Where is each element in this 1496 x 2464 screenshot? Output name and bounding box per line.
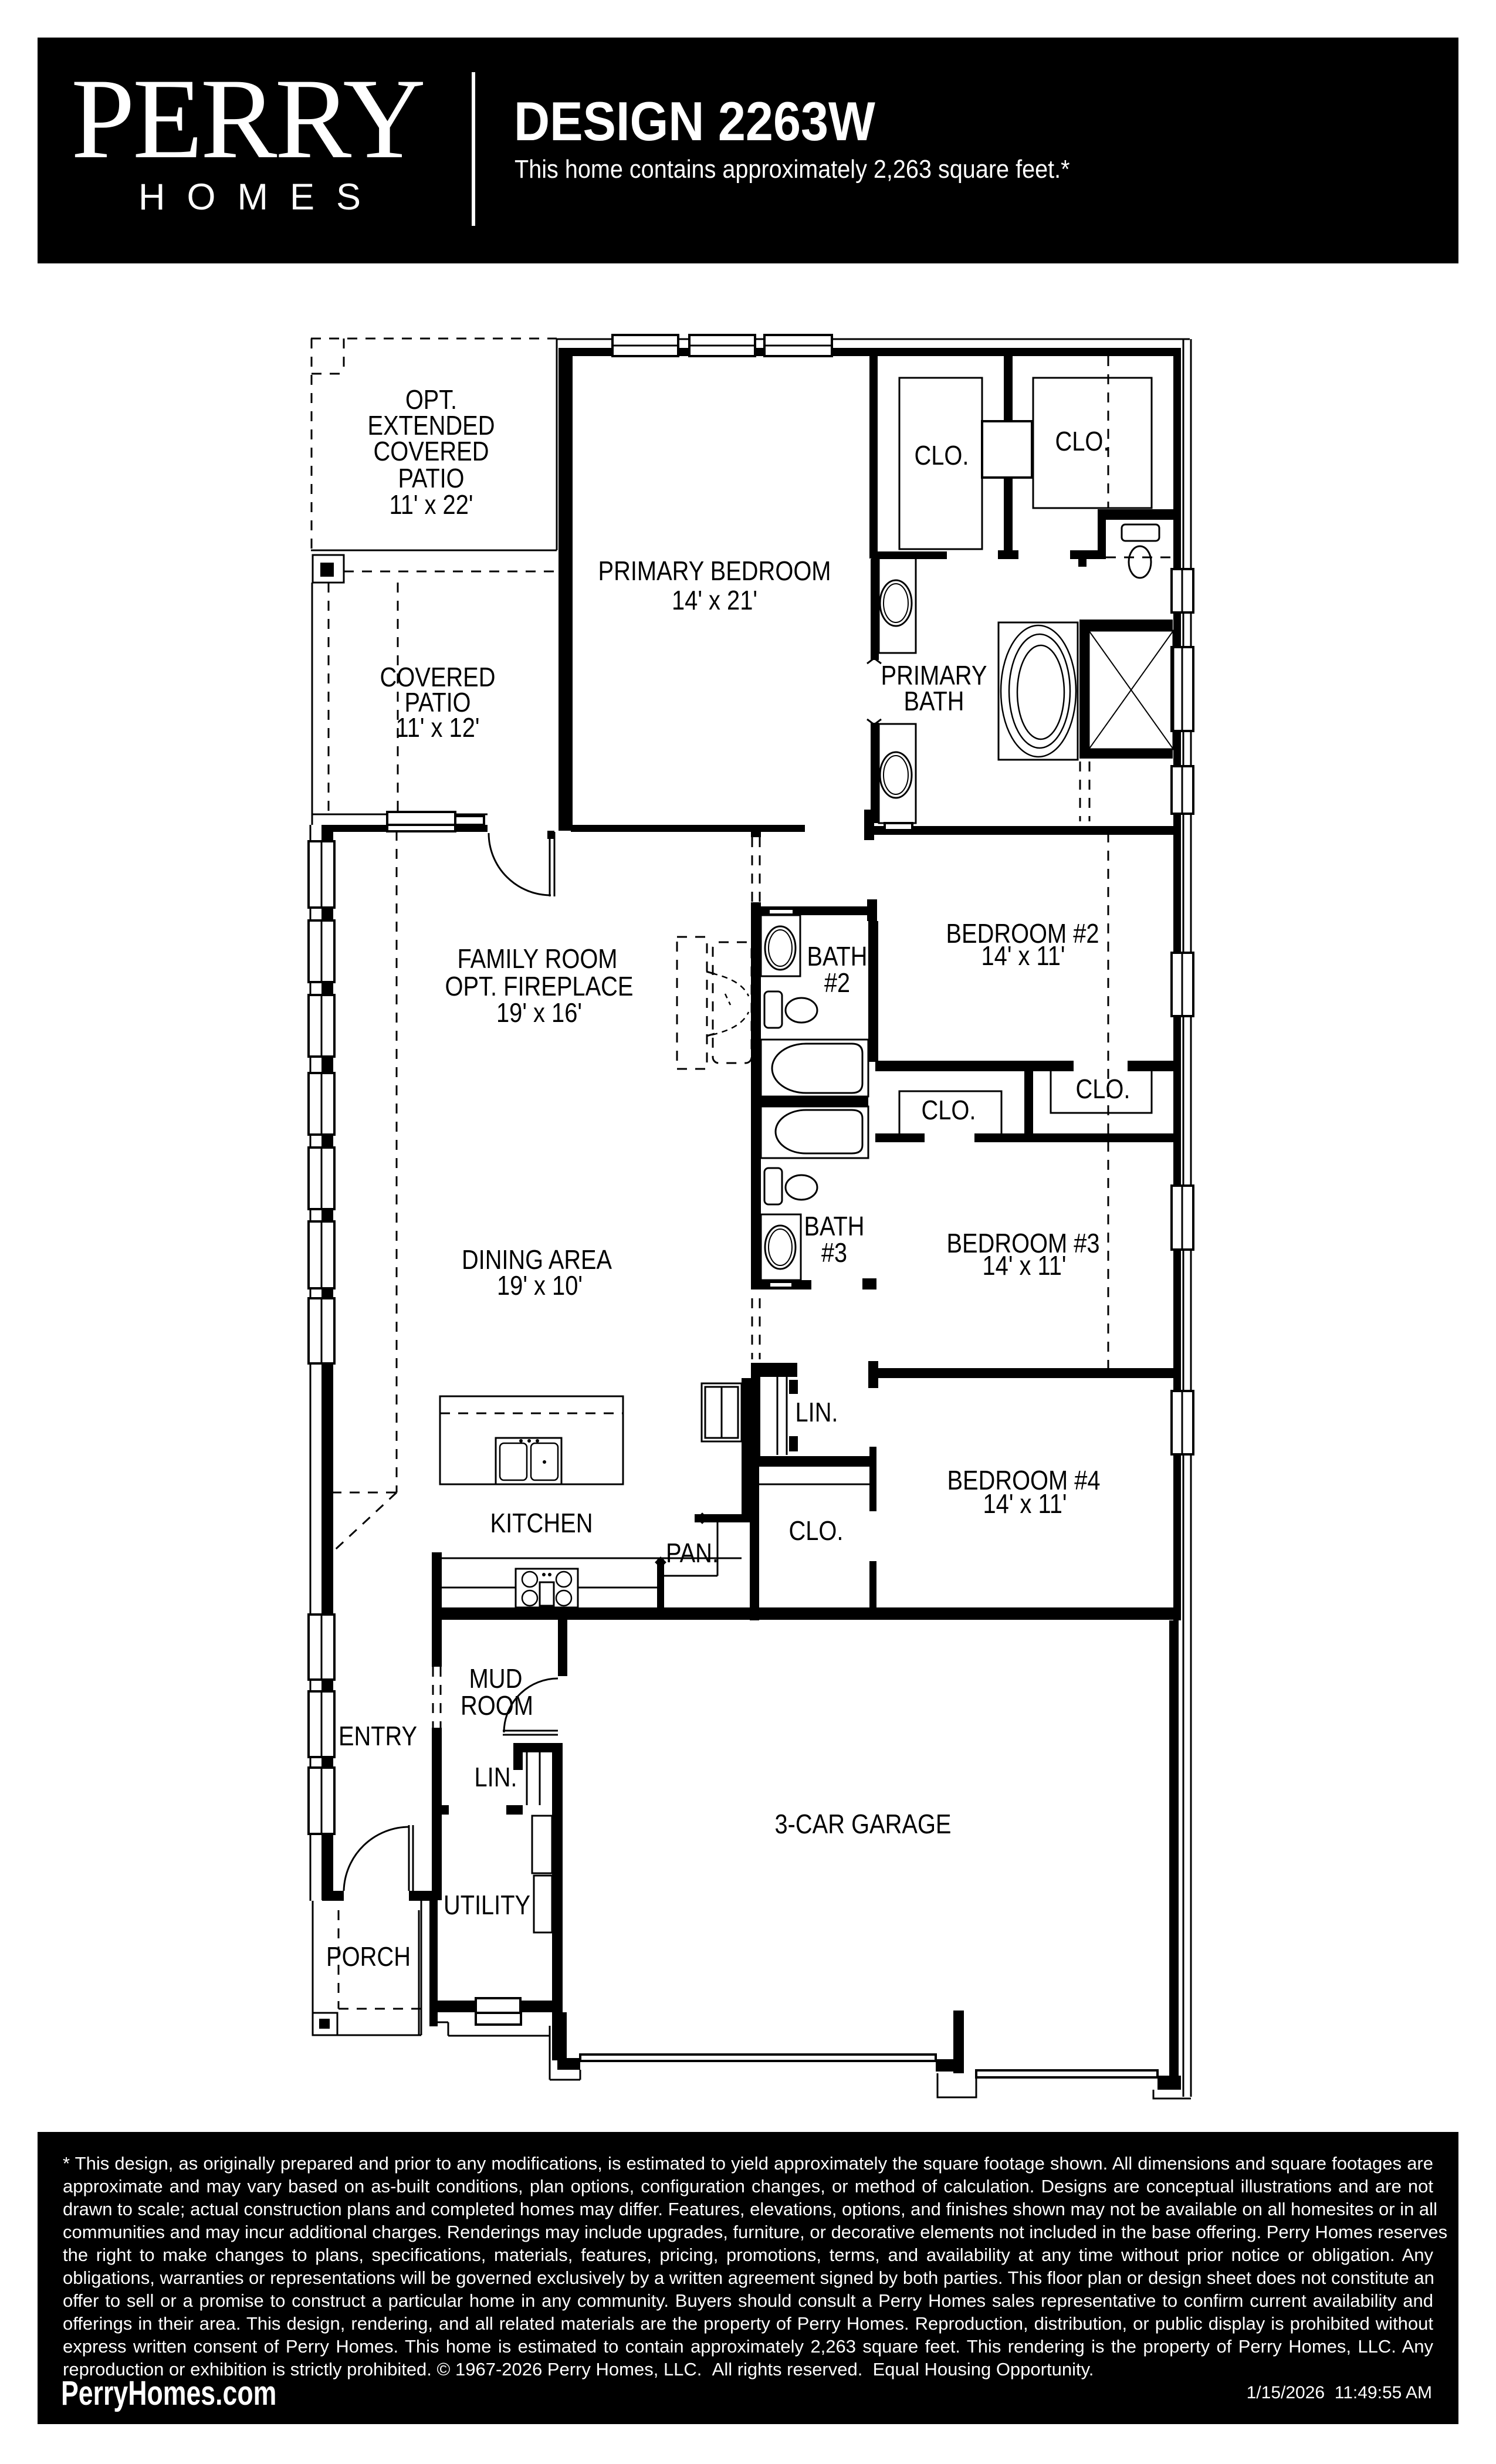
svg-text:11' x 12': 11' x 12' bbox=[396, 712, 480, 743]
svg-text:14' x 11': 14' x 11' bbox=[981, 940, 1065, 971]
svg-text:14' x 11': 14' x 11' bbox=[983, 1250, 1067, 1281]
svg-text:COVERED: COVERED bbox=[374, 436, 489, 466]
svg-text:BATH: BATH bbox=[904, 686, 964, 716]
svg-text:CLO.: CLO. bbox=[789, 1515, 844, 1546]
svg-text:19' x 16': 19' x 16' bbox=[496, 997, 582, 1028]
svg-text:CLO.: CLO. bbox=[1055, 426, 1110, 456]
svg-text:ROOM: ROOM bbox=[461, 1690, 533, 1721]
svg-text:LIN.: LIN. bbox=[796, 1397, 838, 1427]
svg-text:#2: #2 bbox=[824, 967, 850, 998]
svg-text:CLO.: CLO. bbox=[922, 1095, 976, 1125]
svg-text:11' x 22': 11' x 22' bbox=[390, 489, 473, 520]
svg-text:3-CAR GARAGE: 3-CAR GARAGE bbox=[775, 1809, 952, 1839]
svg-text:KITCHEN: KITCHEN bbox=[490, 1508, 593, 1538]
svg-text:MUD: MUD bbox=[469, 1663, 523, 1694]
svg-text:UTILITY: UTILITY bbox=[444, 1890, 530, 1920]
svg-text:19' x 10': 19' x 10' bbox=[497, 1270, 583, 1301]
svg-text:PRIMARY BEDROOM: PRIMARY BEDROOM bbox=[598, 556, 831, 586]
svg-text:PAN.: PAN. bbox=[666, 1538, 719, 1568]
svg-text:PORCH: PORCH bbox=[326, 1941, 411, 1972]
svg-text:FAMILY ROOM: FAMILY ROOM bbox=[458, 943, 618, 974]
svg-text:LIN.: LIN. bbox=[475, 1762, 517, 1792]
svg-text:CLO.: CLO. bbox=[1076, 1074, 1131, 1104]
svg-text:14' x 21': 14' x 21' bbox=[672, 585, 757, 615]
svg-text:#3: #3 bbox=[821, 1237, 847, 1268]
svg-text:CLO.: CLO. bbox=[915, 440, 969, 471]
svg-text:ENTRY: ENTRY bbox=[339, 1721, 417, 1751]
svg-text:14' x 11': 14' x 11' bbox=[983, 1488, 1067, 1519]
